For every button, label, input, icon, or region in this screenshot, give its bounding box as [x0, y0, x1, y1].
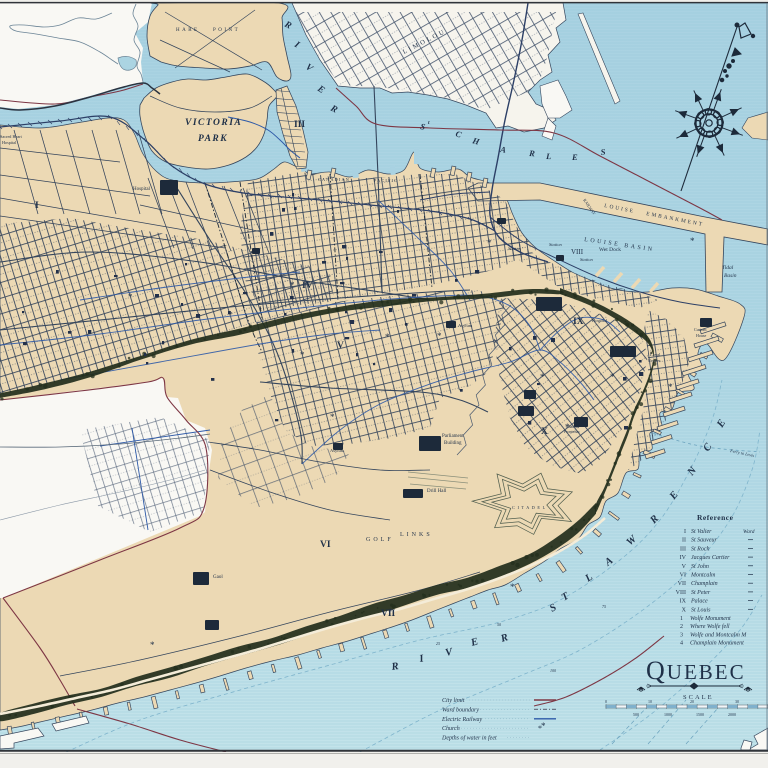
svg-text:20: 20 [690, 699, 694, 704]
svg-text:Hospital: Hospital [592, 318, 608, 323]
svg-text:Asylum: Asylum [458, 323, 473, 328]
svg-text:25: 25 [436, 641, 440, 646]
svg-text:Hospital: Hospital [133, 187, 151, 192]
svg-text:City limit: City limit [442, 698, 465, 704]
svg-text:Electric Railway: Electric Railway [441, 717, 482, 723]
svg-text:*: * [128, 292, 133, 302]
svg-text:Univer.: Univer. [648, 358, 661, 363]
svg-text:Custom: Custom [694, 327, 707, 332]
svg-text:II: II [682, 538, 686, 544]
svg-text:*: * [668, 382, 673, 392]
svg-text:Building: Building [444, 441, 462, 446]
svg-text:*: * [540, 372, 545, 382]
svg-text:Asylum: Asylum [330, 448, 345, 453]
svg-text:Basin: Basin [724, 273, 737, 279]
svg-text:VII: VII [678, 581, 686, 587]
svg-text:St Roch: St Roch [691, 546, 710, 552]
svg-text:Champlain Monument: Champlain Monument [690, 641, 744, 647]
svg-text:Station: Station [549, 242, 563, 247]
svg-text:*: * [538, 724, 542, 733]
svg-text:VICTORIA: VICTORIA [185, 118, 242, 128]
svg-text:*: * [510, 582, 515, 592]
svg-text:Montcalm: Montcalm [690, 573, 716, 579]
svg-text:III: III [294, 120, 305, 130]
svg-text:IX: IX [573, 317, 584, 327]
svg-text:SCALE: SCALE [683, 694, 714, 701]
svg-text:L: L [545, 151, 552, 161]
svg-text:PACIFIC: PACIFIC [374, 178, 398, 183]
svg-text:POINT: POINT [213, 28, 240, 33]
svg-text:*: * [627, 345, 632, 355]
svg-text:R: R [528, 148, 536, 158]
svg-text:VI: VI [320, 540, 331, 550]
svg-text:Parliament: Parliament [442, 434, 464, 439]
svg-text:LINKS: LINKS [400, 532, 433, 538]
svg-text:IX: IX [680, 599, 687, 605]
svg-text:GOLF: GOLF [366, 537, 394, 543]
svg-text:I: I [35, 201, 39, 211]
svg-text:4: 4 [680, 641, 683, 647]
svg-text:Church: Church [442, 726, 460, 732]
svg-text:St Valier: St Valier [691, 529, 712, 535]
svg-text:St Peter: St Peter [691, 590, 711, 596]
svg-text:VIII: VIII [676, 590, 686, 596]
svg-text:*: * [150, 640, 155, 650]
svg-text:75: 75 [602, 604, 606, 609]
svg-text:Depths of water in feet: Depths of water in feet [441, 735, 497, 742]
svg-text:Tidal: Tidal [722, 265, 734, 271]
svg-text:V: V [337, 341, 344, 351]
svg-text:Hospital: Hospital [2, 140, 17, 145]
svg-text:Wet Dock: Wet Dock [599, 247, 621, 253]
svg-text:St Sauveur: St Sauveur [691, 538, 717, 544]
svg-text:*: * [300, 350, 305, 360]
svg-text:VI: VI [680, 573, 686, 579]
svg-text:*: * [290, 280, 295, 290]
svg-text:St John: St John [691, 564, 709, 570]
svg-text:Jacques Cartier: Jacques Cartier [691, 555, 730, 561]
svg-text:1000: 1000 [664, 712, 672, 717]
svg-text:3: 3 [680, 632, 683, 638]
svg-text:CANADIAN: CANADIAN [318, 177, 350, 182]
svg-text:Station: Station [580, 257, 594, 262]
svg-text:VIII: VIII [571, 248, 584, 256]
svg-text:Reference: Reference [697, 513, 734, 522]
svg-text:Ward: Ward [743, 529, 755, 535]
svg-text:PARK: PARK [198, 134, 228, 144]
svg-text:*: * [330, 412, 335, 422]
svg-text:IV: IV [302, 281, 313, 291]
svg-text:100: 100 [550, 668, 556, 673]
svg-text:Ward boundary: Ward boundary [442, 707, 479, 713]
svg-text:Drill Hall: Drill Hall [427, 489, 447, 494]
svg-text:Where Wolfe fell: Where Wolfe fell [690, 623, 730, 630]
svg-text:*: * [610, 372, 615, 382]
svg-text:R: R [390, 661, 399, 673]
svg-text:1500: 1500 [696, 712, 704, 717]
svg-text:St Louis: St Louis [691, 607, 711, 613]
svg-text:Wolfe and Montcalm M: Wolfe and Montcalm M [690, 631, 747, 638]
svg-text:Palace: Palace [690, 599, 708, 605]
svg-text:QUEBEC: QUEBEC [646, 656, 746, 685]
svg-text:500: 500 [633, 712, 639, 717]
svg-text:X: X [541, 427, 548, 437]
svg-text:Wolfe Monument: Wolfe Monument [690, 615, 731, 622]
svg-text:50: 50 [497, 622, 501, 627]
svg-text:IV: IV [680, 555, 687, 561]
svg-text:Station: Station [508, 246, 522, 251]
svg-text:I: I [684, 529, 686, 535]
svg-text:E: E [571, 152, 578, 162]
svg-text:V: V [682, 564, 687, 570]
svg-text:Frontenac: Frontenac [564, 429, 580, 434]
svg-text:2000: 2000 [728, 712, 736, 717]
svg-text:C I T A D E L: C I T A D E L [512, 505, 546, 510]
svg-text:X: X [682, 607, 687, 613]
svg-text:*: * [487, 238, 492, 248]
svg-text:1: 1 [680, 616, 683, 622]
svg-text:III: III [680, 546, 686, 552]
svg-text:30: 30 [735, 699, 739, 704]
svg-text:2: 2 [680, 624, 683, 630]
svg-text:Laval: Laval [650, 352, 661, 357]
svg-text:0: 0 [605, 699, 607, 704]
svg-text:*: * [437, 331, 442, 341]
svg-text:VII: VII [381, 609, 396, 619]
svg-text:*: * [385, 332, 390, 342]
svg-text:House: House [696, 333, 706, 338]
svg-text:10: 10 [648, 699, 652, 704]
svg-text:Sacred Heart: Sacred Heart [0, 134, 23, 139]
svg-text:Champlain: Champlain [691, 581, 718, 587]
svg-text:HARE: HARE [176, 28, 200, 33]
svg-text:Gaol: Gaol [213, 575, 223, 580]
svg-text:*: * [690, 236, 695, 246]
